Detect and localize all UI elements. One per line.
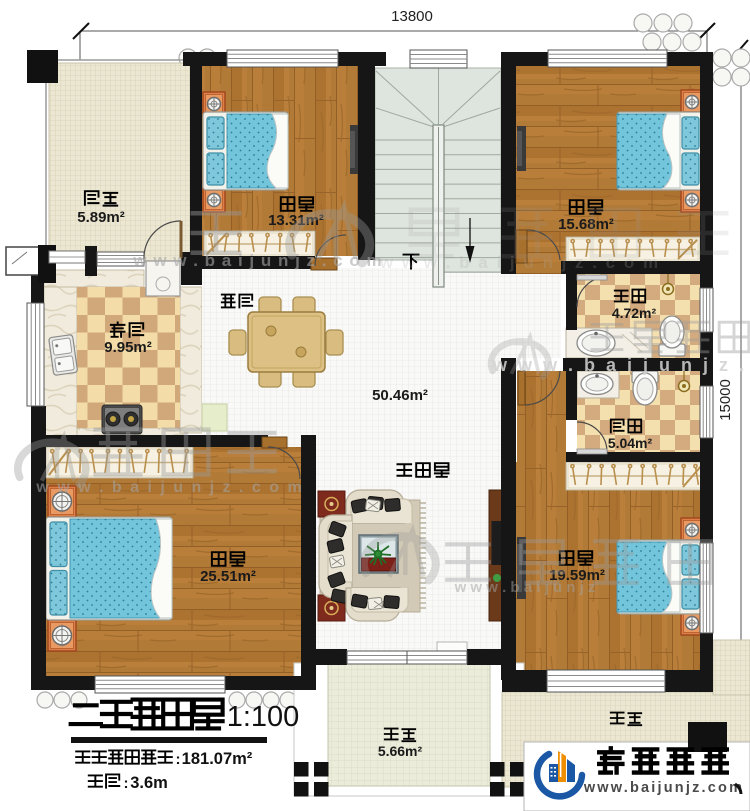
svg-text:5.66m²: 5.66m² [378, 743, 423, 759]
svg-text:13800: 13800 [391, 8, 433, 25]
svg-text:w w w . b a i j u n j z . c o: w w w . b a i j u n j z . c o m [492, 355, 750, 375]
svg-text:w w w . b a i j u n j z . c o: w w w . b a i j u n j z . c o m [132, 251, 382, 270]
svg-text::: : [176, 751, 181, 768]
svg-text:w w w . b a i j u n j z . c o: w w w . b a i j u n j z . c o m [379, 253, 660, 272]
svg-text::: : [124, 775, 129, 792]
svg-text:5.04m²: 5.04m² [608, 435, 653, 451]
svg-text:15.68m²: 15.68m² [558, 216, 614, 233]
svg-text:3.6m: 3.6m [130, 774, 168, 792]
svg-text:9.95m²: 9.95m² [104, 339, 152, 356]
svg-text:181.07m²: 181.07m² [182, 750, 253, 768]
svg-text:4.72m²: 4.72m² [612, 305, 657, 321]
svg-text:15000: 15000 [717, 379, 734, 421]
svg-text:1:100: 1:100 [227, 701, 300, 733]
svg-text:w w w . b a i j u n j z: w w w . b a i j u n j z [454, 579, 596, 596]
svg-text:w w w . b a i j u n j z . c o: w w w . b a i j u n j z . c o m [35, 479, 303, 496]
svg-text:50.46m²: 50.46m² [372, 387, 428, 404]
svg-text:25.51m²: 25.51m² [200, 568, 256, 585]
svg-text:www.baijunjz.com: www.baijunjz.com [583, 780, 744, 796]
svg-text:5.89m²: 5.89m² [77, 209, 125, 226]
